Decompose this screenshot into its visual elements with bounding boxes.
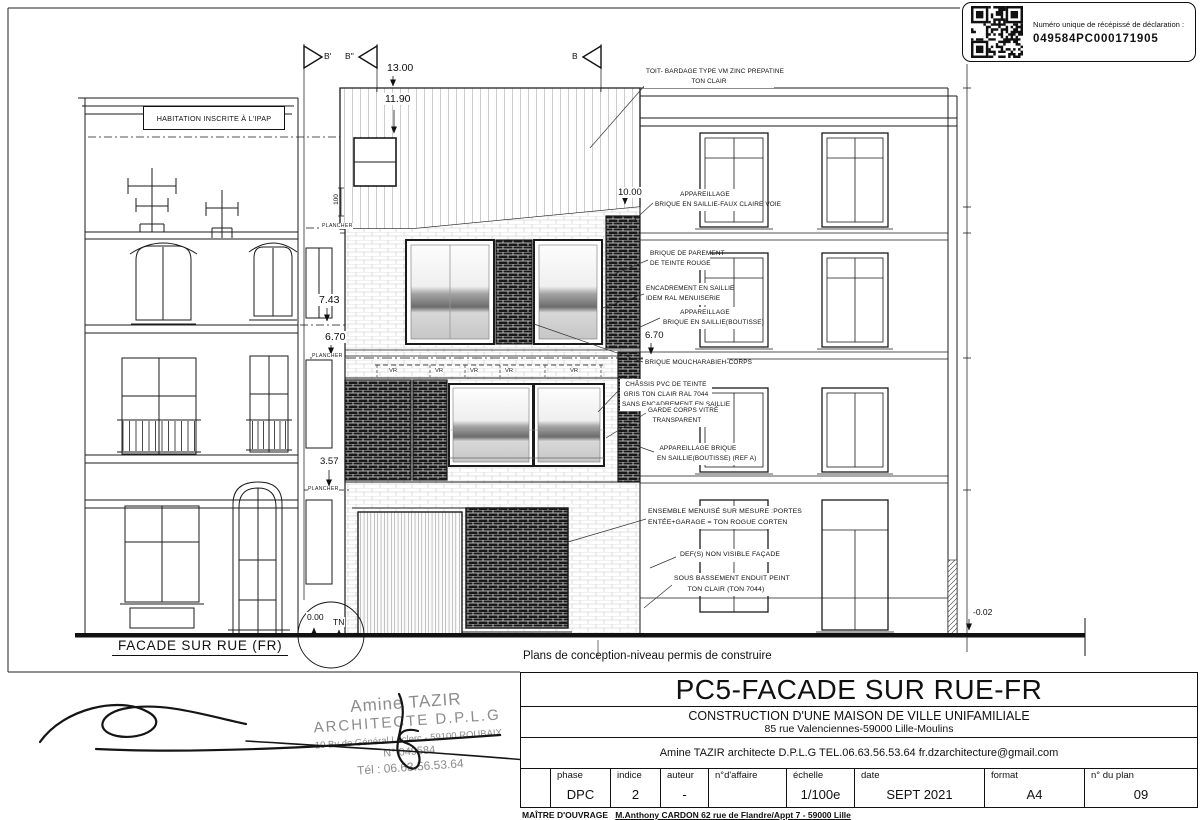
plan-sheet: { "colors": {"ink": "#1a1a1a", "stamp_gr… bbox=[0, 0, 1200, 820]
title-block: PC5-FACADE SUR RUE-FR CONSTRUCTION D'UNE… bbox=[520, 672, 1198, 808]
architect-stamp: Amine TAZIR ARCHITECTE D.P.L.G 10 Bv de … bbox=[285, 684, 530, 783]
maitre-ouvrage-line: MAÎTRE D'OUVRAGE M.Anthony CARDON 62 rue… bbox=[522, 810, 851, 820]
section-label-b: B bbox=[572, 51, 578, 61]
spec-label: auteur bbox=[661, 769, 708, 781]
plancher-label-1: PLANCHER bbox=[322, 223, 353, 229]
annotation-line: GARDE CORPS VITRÉ bbox=[648, 406, 706, 416]
annotation-line: BRIQUE DE PAREMENT bbox=[650, 249, 708, 259]
annotation-line: SOUS BASSEMENT ENDUIT PEINT bbox=[674, 574, 778, 585]
architect-contact: Amine TAZIR architecte D.P.L.G TEL.06.63… bbox=[521, 738, 1197, 769]
spec-value bbox=[709, 781, 786, 807]
spec-table: phase DPC indice 2 auteur - n°d'affaire … bbox=[521, 769, 1197, 807]
dim-10-00: 10.00 bbox=[617, 187, 643, 198]
dimension-lines bbox=[300, 64, 971, 652]
section-label-b-second: B'' bbox=[345, 51, 354, 61]
annotation-line: ENSEMBLE MENUISÉ SUR MESURE :PORTES bbox=[648, 507, 782, 518]
spec-cell-date: date SEPT 2021 bbox=[855, 769, 985, 807]
project-address: 85 rue Valenciennes-59000 Lille-Moulins bbox=[521, 723, 1197, 735]
annotation-line: BRIQUE EN SAILLIE(BOUTISSE) bbox=[663, 318, 747, 328]
dim-minus-0-02: -0.02 bbox=[972, 607, 993, 617]
annotation-garde-corps: GARDE CORPS VITRÉ TRANSPARENT bbox=[646, 405, 708, 427]
project-title: CONSTRUCTION D'UNE MAISON DE VILLE UNIFA… bbox=[521, 709, 1197, 723]
project-row: CONSTRUCTION D'UNE MAISON DE VILLE UNIFA… bbox=[521, 707, 1197, 738]
annotation-brique-parement: BRIQUE DE PAREMENT DE TEINTE ROUGE bbox=[648, 248, 710, 270]
annotation-line: APPAREILLAGE BRIQUE bbox=[657, 444, 739, 454]
annotation-toit-bardage: TOIT- BARDAGE TYPE VM ZINC PREPATINE TON… bbox=[644, 66, 774, 88]
annotation-line: TON CLAIR (TON 7044) bbox=[674, 585, 778, 596]
annotation-moucharabieh: BRIQUE MOUCHARABIEH-CORPS bbox=[643, 357, 727, 369]
annotation-line: CHÂSSIS PVC DE TEINTE bbox=[622, 380, 710, 390]
spec-value: DPC bbox=[551, 781, 610, 807]
spec-label: échelle bbox=[787, 769, 854, 781]
annotation-appareillage-boutisse: APPAREILLAGE BRIQUE EN SAILLIE(BOUTISSE) bbox=[661, 307, 749, 329]
annotation-line: ENTÉE+GARAGE = TON ROGUE CORTEN bbox=[648, 518, 782, 529]
annotation-line: APPAREILLAGE bbox=[655, 190, 755, 200]
spec-cell-phase: phase DPC bbox=[551, 769, 611, 807]
annotation-line: BRIQUE MOUCHARABIEH-CORPS bbox=[645, 358, 725, 368]
qr-code-icon bbox=[971, 6, 1023, 58]
left-building bbox=[78, 98, 410, 636]
vr-label-3: VR bbox=[470, 368, 478, 374]
section-markers bbox=[304, 44, 601, 600]
spec-label: n°d'affaire bbox=[709, 769, 786, 781]
annotation-sous-bassement: SOUS BASSEMENT ENDUIT PEINT TON CLAIR (T… bbox=[672, 573, 780, 596]
annotation-line: GRIS TON CLAIR RAL 7044 bbox=[622, 390, 710, 400]
spec-value: A4 bbox=[985, 781, 1084, 807]
spec-label: format bbox=[985, 769, 1084, 781]
annotation-line: IDEM RAL MENUISERIE bbox=[646, 294, 718, 304]
dim-tn: TN bbox=[332, 617, 345, 627]
dim-7-43: 7.43 bbox=[318, 294, 340, 306]
maitre-ouvrage-value: M.Anthony CARDON 62 rue de Flandre/Appt … bbox=[615, 810, 851, 820]
annotation-line: ENCADREMENT EN SAILLIE bbox=[646, 284, 718, 294]
receipt-label: Numéro unique de récépissé de déclaratio… bbox=[1033, 20, 1184, 29]
annotation-line: TON CLAIR bbox=[646, 77, 772, 87]
spec-value: 09 bbox=[1085, 781, 1197, 807]
facade-caption: FACADE SUR RUE (FR) bbox=[112, 638, 288, 656]
spec-cell-echelle: échelle 1/100e bbox=[787, 769, 855, 807]
plancher-label-3: PLANCHER bbox=[308, 486, 339, 492]
spec-cell-affaire: n°d'affaire bbox=[709, 769, 787, 807]
spec-label: indice bbox=[611, 769, 660, 781]
vr-label-1: VR bbox=[389, 368, 397, 374]
spec-value: 1/100e bbox=[787, 781, 854, 807]
annotation-appareillage-ref-a: APPAREILLAGE BRIQUE EN SAILLIE(BOUTISSE)… bbox=[655, 443, 741, 465]
annotation-line: APPAREILLAGE bbox=[663, 308, 747, 318]
spec-cell-plan-number: n° du plan 09 bbox=[1085, 769, 1197, 807]
vr-label-5: VR bbox=[570, 368, 578, 374]
dim-100: 100 bbox=[333, 193, 340, 206]
spec-cell-auteur: auteur - bbox=[661, 769, 709, 807]
spec-value: SEPT 2021 bbox=[855, 781, 984, 807]
annotation-line: TOIT- BARDAGE TYPE VM ZINC PREPATINE bbox=[646, 67, 772, 77]
vr-label-2: VR bbox=[435, 368, 443, 374]
habitation-ipap-label: HABITATION INSCRITE À L'IPAP bbox=[143, 106, 285, 130]
annotation-line: EN SAILLIE(BOUTISSE) (REF A) bbox=[657, 454, 739, 464]
vr-label-4: VR bbox=[505, 368, 513, 374]
plan-title: PC5-FACADE SUR RUE-FR bbox=[521, 673, 1197, 707]
spec-cell-indice: indice 2 bbox=[611, 769, 661, 807]
spec-cell-format: format A4 bbox=[985, 769, 1085, 807]
spec-label: date bbox=[855, 769, 984, 781]
dim-11-90: 11.90 bbox=[384, 93, 412, 105]
plancher-label-2: PLANCHER bbox=[312, 353, 343, 359]
annotation-appareillage-claire-voie: APPAREILLAGE BRIQUE EN SAILLIE-FAUX CLAI… bbox=[653, 189, 757, 211]
spec-label: phase bbox=[551, 769, 610, 781]
maitre-ouvrage-label: MAÎTRE D'OUVRAGE bbox=[522, 810, 608, 820]
new-building bbox=[338, 88, 640, 636]
plan-level-caption: Plans de conception-niveau permis de con… bbox=[523, 650, 772, 662]
dim-13-00: 13.00 bbox=[386, 62, 414, 74]
annotation-encadrement: ENCADREMENT EN SAILLIE IDEM RAL MENUISER… bbox=[644, 283, 720, 305]
dim-6-70-right: 6.70 bbox=[644, 330, 665, 341]
dim-6-70-left: 6.70 bbox=[324, 331, 346, 343]
dim-0-00: 0.00 bbox=[306, 612, 325, 622]
spec-value: - bbox=[661, 781, 708, 807]
annotation-line: DEF(S) NON VISIBLE FAÇADE bbox=[680, 550, 772, 561]
annotation-line: DE TEINTE ROUGE bbox=[650, 259, 708, 269]
annotation-ensemble-menuise: ENSEMBLE MENUISÉ SUR MESURE :PORTES ENTÉ… bbox=[646, 506, 784, 529]
annotation-line: TRANSPARENT bbox=[648, 416, 706, 426]
annotation-leaders bbox=[534, 84, 676, 658]
spec-cell-empty bbox=[521, 769, 551, 807]
dim-3-57: 3.57 bbox=[319, 456, 340, 467]
section-label-b-prime: B' bbox=[324, 51, 331, 61]
receipt-number: 049584PC000171905 bbox=[1033, 33, 1184, 45]
annotation-def-non-visible: DEF(S) NON VISIBLE FAÇADE bbox=[678, 549, 774, 562]
annotation-line: BRIQUE EN SAILLIE-FAUX CLAIRE VOIE bbox=[655, 200, 755, 210]
spec-label: n° du plan bbox=[1085, 769, 1197, 781]
spec-value: 2 bbox=[611, 781, 660, 807]
declaration-receipt-box: Numéro unique de récépissé de déclaratio… bbox=[962, 2, 1196, 62]
